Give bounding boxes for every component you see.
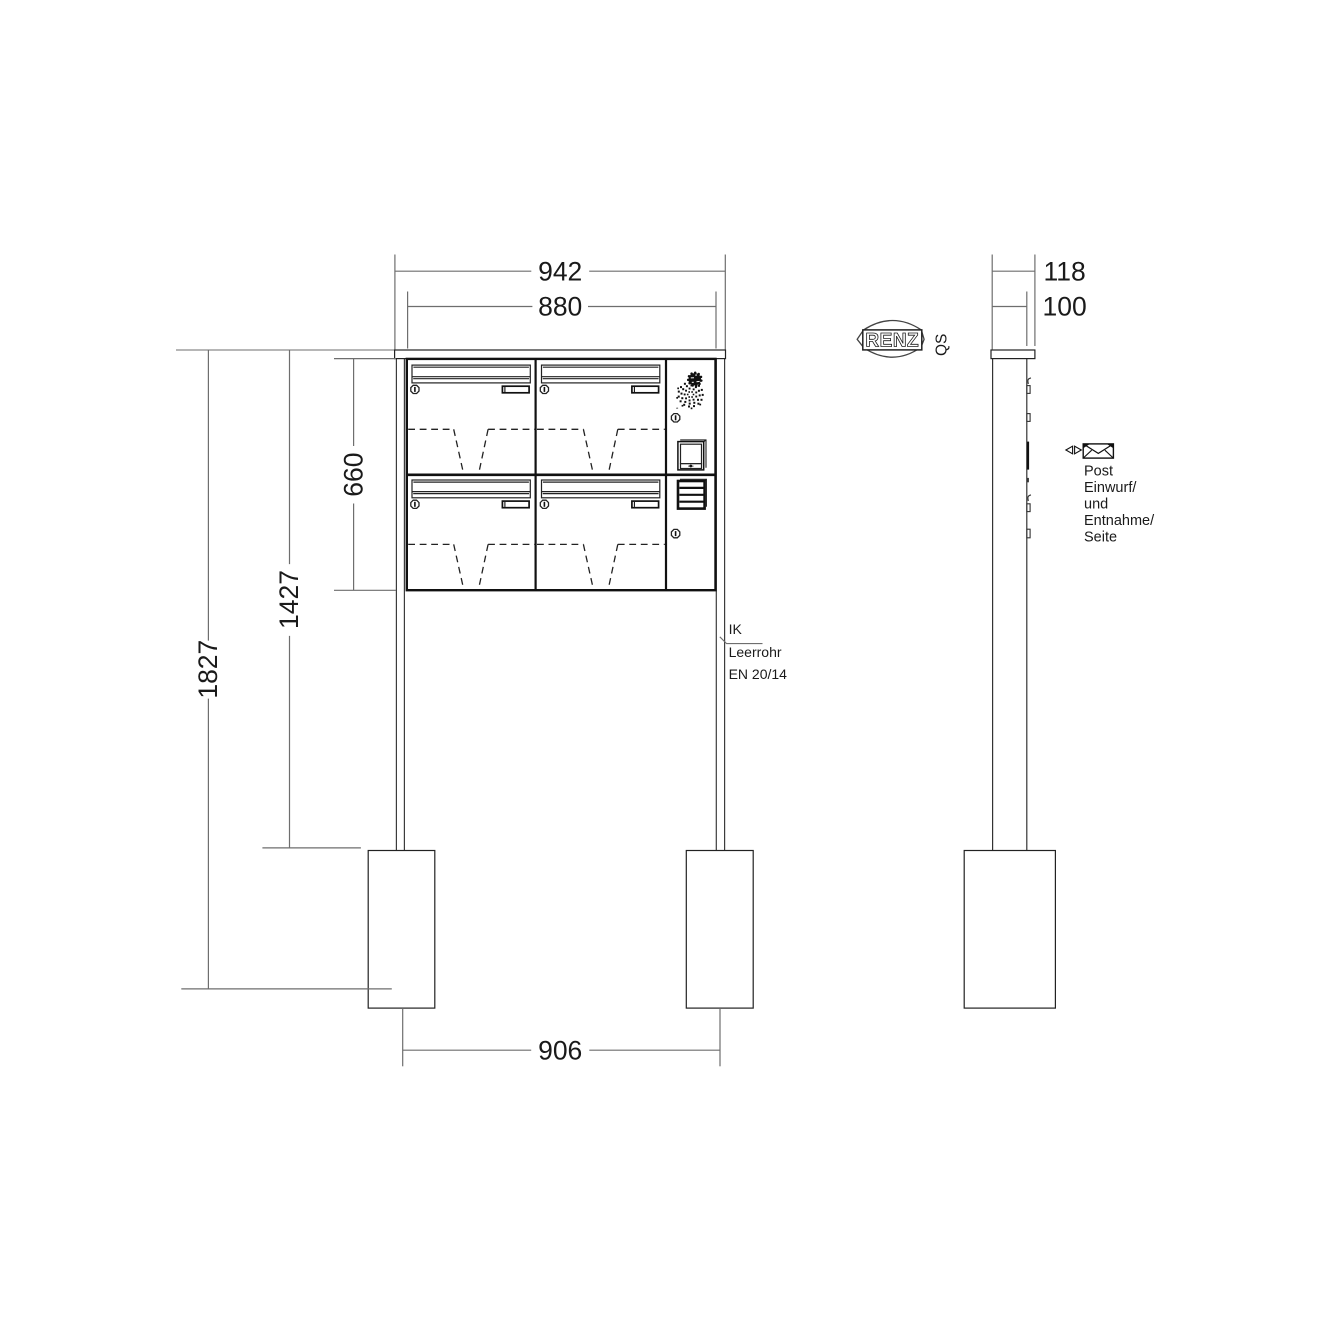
svg-text:118: 118 (1044, 256, 1086, 286)
svg-text:RENZ: RENZ (865, 331, 919, 352)
svg-text:942: 942 (538, 256, 582, 286)
svg-text:QS: QS (933, 334, 950, 356)
svg-text:1827: 1827 (193, 640, 223, 699)
svg-text:EN 20/14: EN 20/14 (729, 666, 788, 682)
svg-text:und: und (1084, 496, 1108, 512)
svg-text:Post: Post (1084, 463, 1113, 479)
svg-text:100: 100 (1043, 292, 1087, 322)
svg-text:906: 906 (538, 1036, 582, 1066)
svg-text:Einwurf/: Einwurf/ (1084, 480, 1137, 496)
svg-text:880: 880 (538, 292, 582, 322)
svg-text:660: 660 (338, 452, 368, 496)
svg-text:Entnahme/: Entnahme/ (1084, 513, 1155, 529)
svg-text:1427: 1427 (274, 570, 304, 629)
svg-text:Seite: Seite (1084, 529, 1117, 545)
svg-text:IK: IK (729, 621, 743, 637)
svg-text:Leerrohr: Leerrohr (729, 644, 782, 660)
